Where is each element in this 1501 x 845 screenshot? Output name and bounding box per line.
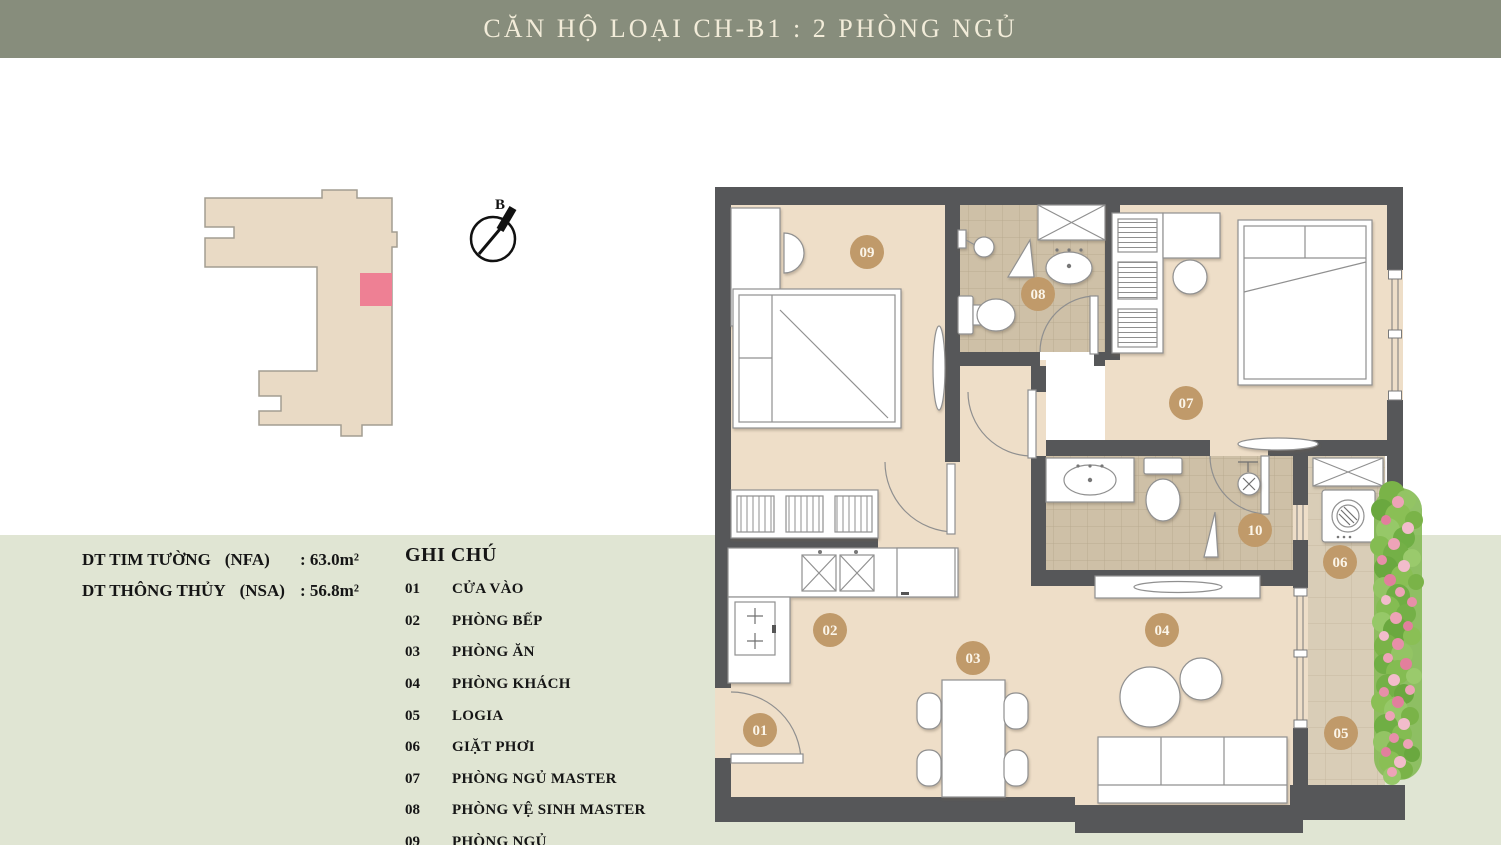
coffee-table bbox=[1180, 658, 1222, 700]
washing-machine bbox=[1322, 490, 1375, 542]
room-badge-08: 08 bbox=[1021, 277, 1055, 311]
console-shelf bbox=[1238, 438, 1318, 450]
room-badge-07: 07 bbox=[1169, 386, 1203, 420]
unit-highlight bbox=[360, 273, 392, 306]
legend-item-number: 08 bbox=[405, 802, 452, 819]
legend-item-label: CỬA VÀO bbox=[452, 581, 524, 598]
legend-item: 06 GIẶT PHƠI bbox=[405, 732, 646, 764]
svg-text:03: 03 bbox=[966, 651, 981, 667]
linen-closet-06 bbox=[1313, 458, 1383, 486]
area-value: : 63.0m² bbox=[300, 544, 359, 575]
stove bbox=[728, 597, 790, 683]
room-badge-04: 04 bbox=[1145, 613, 1179, 647]
legend: GHI CHÚ 01 CỬA VÀO 02 PHÒNG BẾP 03 PHÒNG… bbox=[405, 540, 646, 845]
legend-item-label: PHÒNG BẾP bbox=[452, 613, 543, 630]
svg-text:07: 07 bbox=[1179, 396, 1195, 412]
fridge bbox=[897, 548, 955, 597]
room-badge-10: 10 bbox=[1238, 513, 1272, 547]
legend-item: 05 LOGIA bbox=[405, 700, 646, 732]
area-row-nsa: DT THÔNG THỦY(NSA) : 56.8m² bbox=[82, 575, 285, 606]
sofa bbox=[1098, 737, 1287, 803]
svg-text:01: 01 bbox=[753, 723, 768, 739]
svg-text:04: 04 bbox=[1155, 623, 1171, 639]
dining-chair bbox=[917, 693, 941, 729]
building-overview: B bbox=[180, 170, 540, 460]
mirror-panel bbox=[933, 326, 945, 410]
legend-item: 08 PHÒNG VỆ SINH MASTER bbox=[405, 795, 646, 827]
wardrobe-09 bbox=[731, 490, 878, 538]
area-code: (NSA) bbox=[240, 581, 285, 600]
legend-item-number: 02 bbox=[405, 613, 452, 630]
area-label: DT TIM TƯỜNG bbox=[82, 550, 211, 569]
area-row-nfa: DT TIM TƯỜNG(NFA) : 63.0m² bbox=[82, 544, 285, 575]
legend-item-label: PHÒNG NGỦ bbox=[452, 834, 547, 845]
area-value: : 56.8m² bbox=[300, 575, 359, 606]
area-info: DT TIM TƯỜNG(NFA) : 63.0m² DT THÔNG THỦY… bbox=[82, 544, 285, 606]
shelf-07 bbox=[1163, 213, 1220, 258]
legend-item-label: PHÒNG VỆ SINH MASTER bbox=[452, 802, 646, 819]
room-badge-05: 05 bbox=[1324, 716, 1358, 750]
double-bed-09 bbox=[733, 289, 901, 428]
window-laundry bbox=[1293, 505, 1308, 540]
legend-item: 03 PHÒNG ĂN bbox=[405, 637, 646, 669]
title-bar: CĂN HỘ LOẠI CH-B1 : 2 PHÒNG NGỦ bbox=[0, 0, 1501, 58]
vanity-sink-10 bbox=[1046, 458, 1134, 502]
linen-closet-08 bbox=[1038, 205, 1105, 240]
coffee-table bbox=[1120, 667, 1180, 727]
dining-chair bbox=[1004, 693, 1028, 729]
legend-item-number: 06 bbox=[405, 739, 452, 756]
stool bbox=[1173, 260, 1207, 294]
area-code: (NFA) bbox=[225, 550, 270, 569]
area-label: DT THÔNG THỦY bbox=[82, 581, 226, 600]
building-outline bbox=[205, 190, 397, 436]
dining-chair bbox=[1004, 750, 1028, 786]
toilet-08 bbox=[958, 296, 1015, 334]
flower-planter bbox=[1370, 481, 1424, 785]
sliding-door-logia bbox=[1293, 588, 1308, 728]
svg-text:09: 09 bbox=[860, 245, 875, 261]
room-badge-03: 03 bbox=[956, 641, 990, 675]
dining-table bbox=[942, 680, 1005, 797]
room-badge-09: 09 bbox=[850, 235, 884, 269]
legend-item-label: LOGIA bbox=[452, 708, 504, 725]
legend-item-number: 01 bbox=[405, 581, 452, 598]
dining-chair bbox=[917, 750, 941, 786]
legend-item: 09 PHÒNG NGỦ bbox=[405, 827, 646, 845]
window-master-bedroom bbox=[1387, 270, 1403, 400]
legend-item: 04 PHÒNG KHÁCH bbox=[405, 669, 646, 701]
room-badge-02: 02 bbox=[813, 613, 847, 647]
svg-text:10: 10 bbox=[1248, 523, 1263, 539]
page-title: CĂN HỘ LOẠI CH-B1 : 2 PHÒNG NGỦ bbox=[483, 14, 1017, 44]
floor-entry-gap bbox=[715, 688, 731, 760]
legend-item: 02 PHÒNG BẾP bbox=[405, 606, 646, 638]
legend-item: 07 PHÒNG NGỦ MASTER bbox=[405, 764, 646, 796]
legend-title: GHI CHÚ bbox=[405, 540, 646, 574]
svg-text:02: 02 bbox=[823, 623, 838, 639]
legend-item: 01 CỬA VÀO bbox=[405, 574, 646, 606]
legend-item-label: PHÒNG ĂN bbox=[452, 644, 535, 661]
legend-item-label: PHÒNG KHÁCH bbox=[452, 676, 571, 693]
svg-text:06: 06 bbox=[1333, 555, 1349, 571]
double-bed-07 bbox=[1238, 220, 1372, 385]
legend-item-number: 09 bbox=[405, 834, 452, 845]
wardrobe-07 bbox=[1112, 213, 1163, 353]
room-badge-06: 06 bbox=[1323, 545, 1357, 579]
room-badge-01: 01 bbox=[743, 713, 777, 747]
svg-text:08: 08 bbox=[1031, 287, 1046, 303]
compass-icon: B bbox=[471, 197, 515, 261]
legend-item-label: GIẶT PHƠI bbox=[452, 739, 535, 756]
legend-item-label: PHÒNG NGỦ MASTER bbox=[452, 771, 617, 788]
tv bbox=[1134, 582, 1222, 593]
legend-item-number: 05 bbox=[405, 708, 452, 725]
floor-plan: 01 02 03 04 05 06 07 08 09 10 bbox=[700, 178, 1445, 845]
legend-item-number: 07 bbox=[405, 771, 452, 788]
svg-text:05: 05 bbox=[1334, 726, 1349, 742]
floor-plan-page: CĂN HỘ LOẠI CH-B1 : 2 PHÒNG NGỦ B DT TIM… bbox=[0, 0, 1501, 845]
toilet-10 bbox=[1144, 458, 1182, 521]
legend-item-number: 04 bbox=[405, 676, 452, 693]
compass-label: B bbox=[495, 197, 505, 213]
legend-item-number: 03 bbox=[405, 644, 452, 661]
